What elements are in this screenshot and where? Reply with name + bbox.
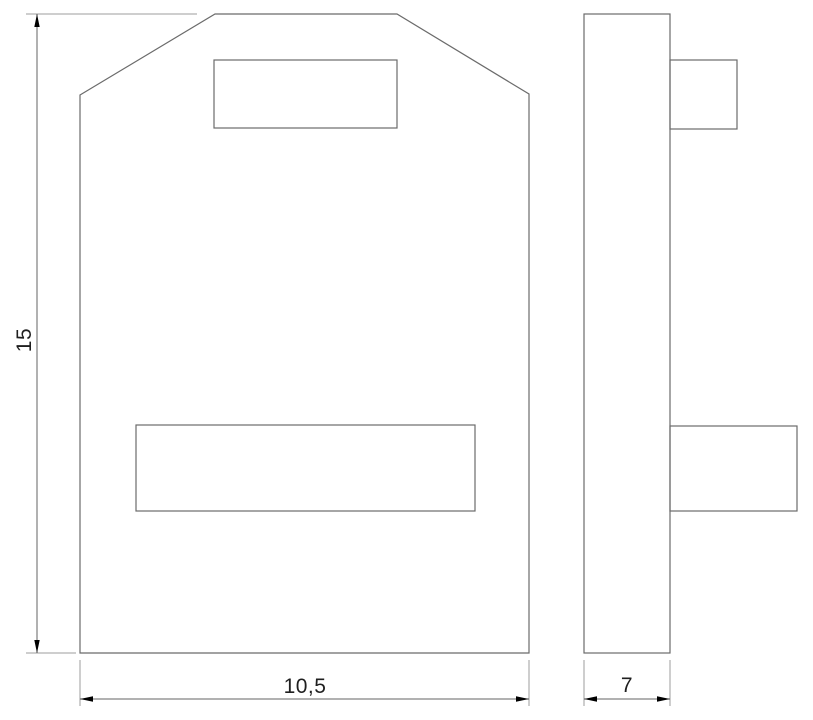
front-view-bottom-slot [136, 425, 475, 511]
depth-arrow-right-icon [657, 696, 670, 701]
side-view-bottom-tab [670, 426, 797, 511]
technical-drawing-page: 15 10,5 7 [0, 0, 813, 720]
drawing-canvas: 15 10,5 7 [0, 0, 813, 720]
front-view-top-slot [214, 60, 397, 128]
front-view [80, 14, 529, 653]
extension-lines [26, 14, 670, 706]
width-dimension-label: 10,5 [284, 675, 327, 698]
depth-dimension-label: 7 [621, 674, 633, 697]
width-arrow-right-icon [516, 696, 529, 701]
side-view-body [584, 14, 670, 653]
dimension-lines [37, 14, 670, 699]
depth-arrow-left-icon [584, 696, 597, 701]
dimension-arrows [34, 14, 670, 702]
front-view-outline [80, 14, 529, 653]
side-view-top-tab [670, 60, 737, 129]
height-dimension-label: 15 [13, 328, 36, 352]
width-arrow-left-icon [80, 696, 93, 701]
height-arrow-down-icon [34, 640, 39, 653]
height-arrow-up-icon [34, 14, 39, 27]
side-view [584, 14, 797, 653]
dimension-labels: 15 10,5 7 [13, 328, 633, 698]
